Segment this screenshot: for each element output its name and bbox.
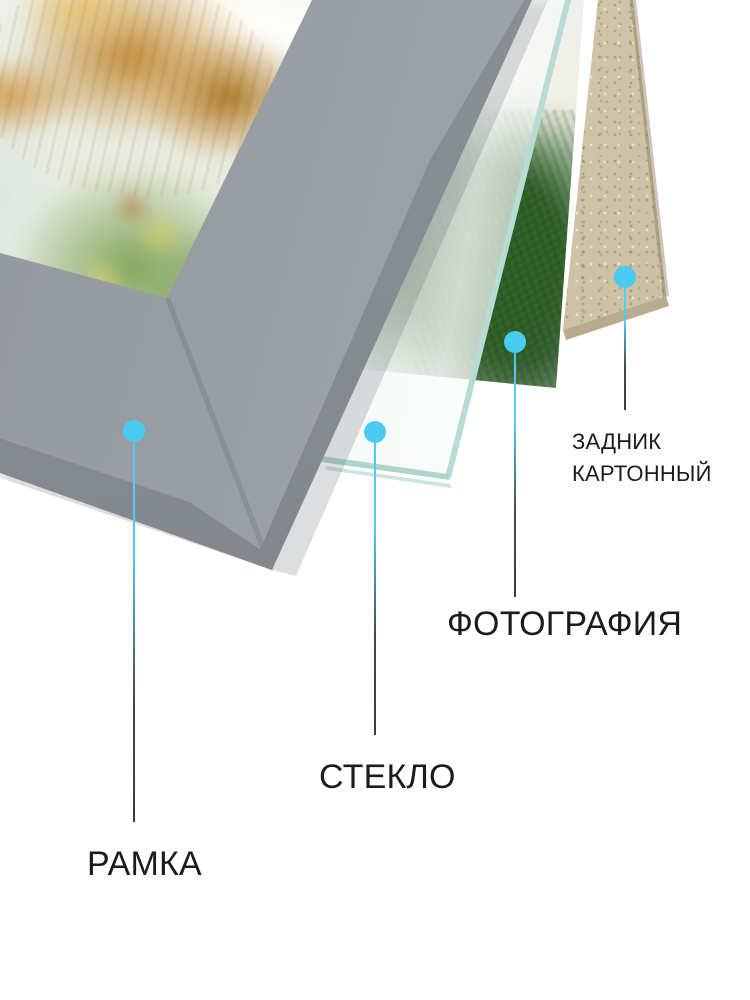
callout-label-frame: РАМКА: [87, 846, 202, 882]
callout-line-glass: [374, 432, 376, 735]
callout-label-backing: ЗАДНИК КАРТОННЫЙ: [572, 426, 712, 490]
frame-layers-diagram: РАМКА СТЕКЛО ФОТОГРАФИЯ ЗАДНИК КАРТОННЫЙ: [0, 0, 750, 1000]
callout-label-photo: ФОТОГРАФИЯ: [447, 606, 682, 642]
callout-dot-glass: [364, 421, 386, 443]
callout-line-backing: [624, 278, 626, 410]
callout-dot-frame: [123, 420, 145, 442]
callout-dot-photo: [504, 331, 526, 353]
callout-label-backing-line1: ЗАДНИК: [572, 426, 712, 458]
callout-line-frame: [133, 431, 135, 822]
callout-dot-backing: [614, 266, 636, 288]
callout-label-glass: СТЕКЛО: [319, 759, 456, 795]
callout-label-backing-line2: КАРТОННЫЙ: [572, 458, 712, 490]
callout-line-photo: [514, 342, 516, 597]
